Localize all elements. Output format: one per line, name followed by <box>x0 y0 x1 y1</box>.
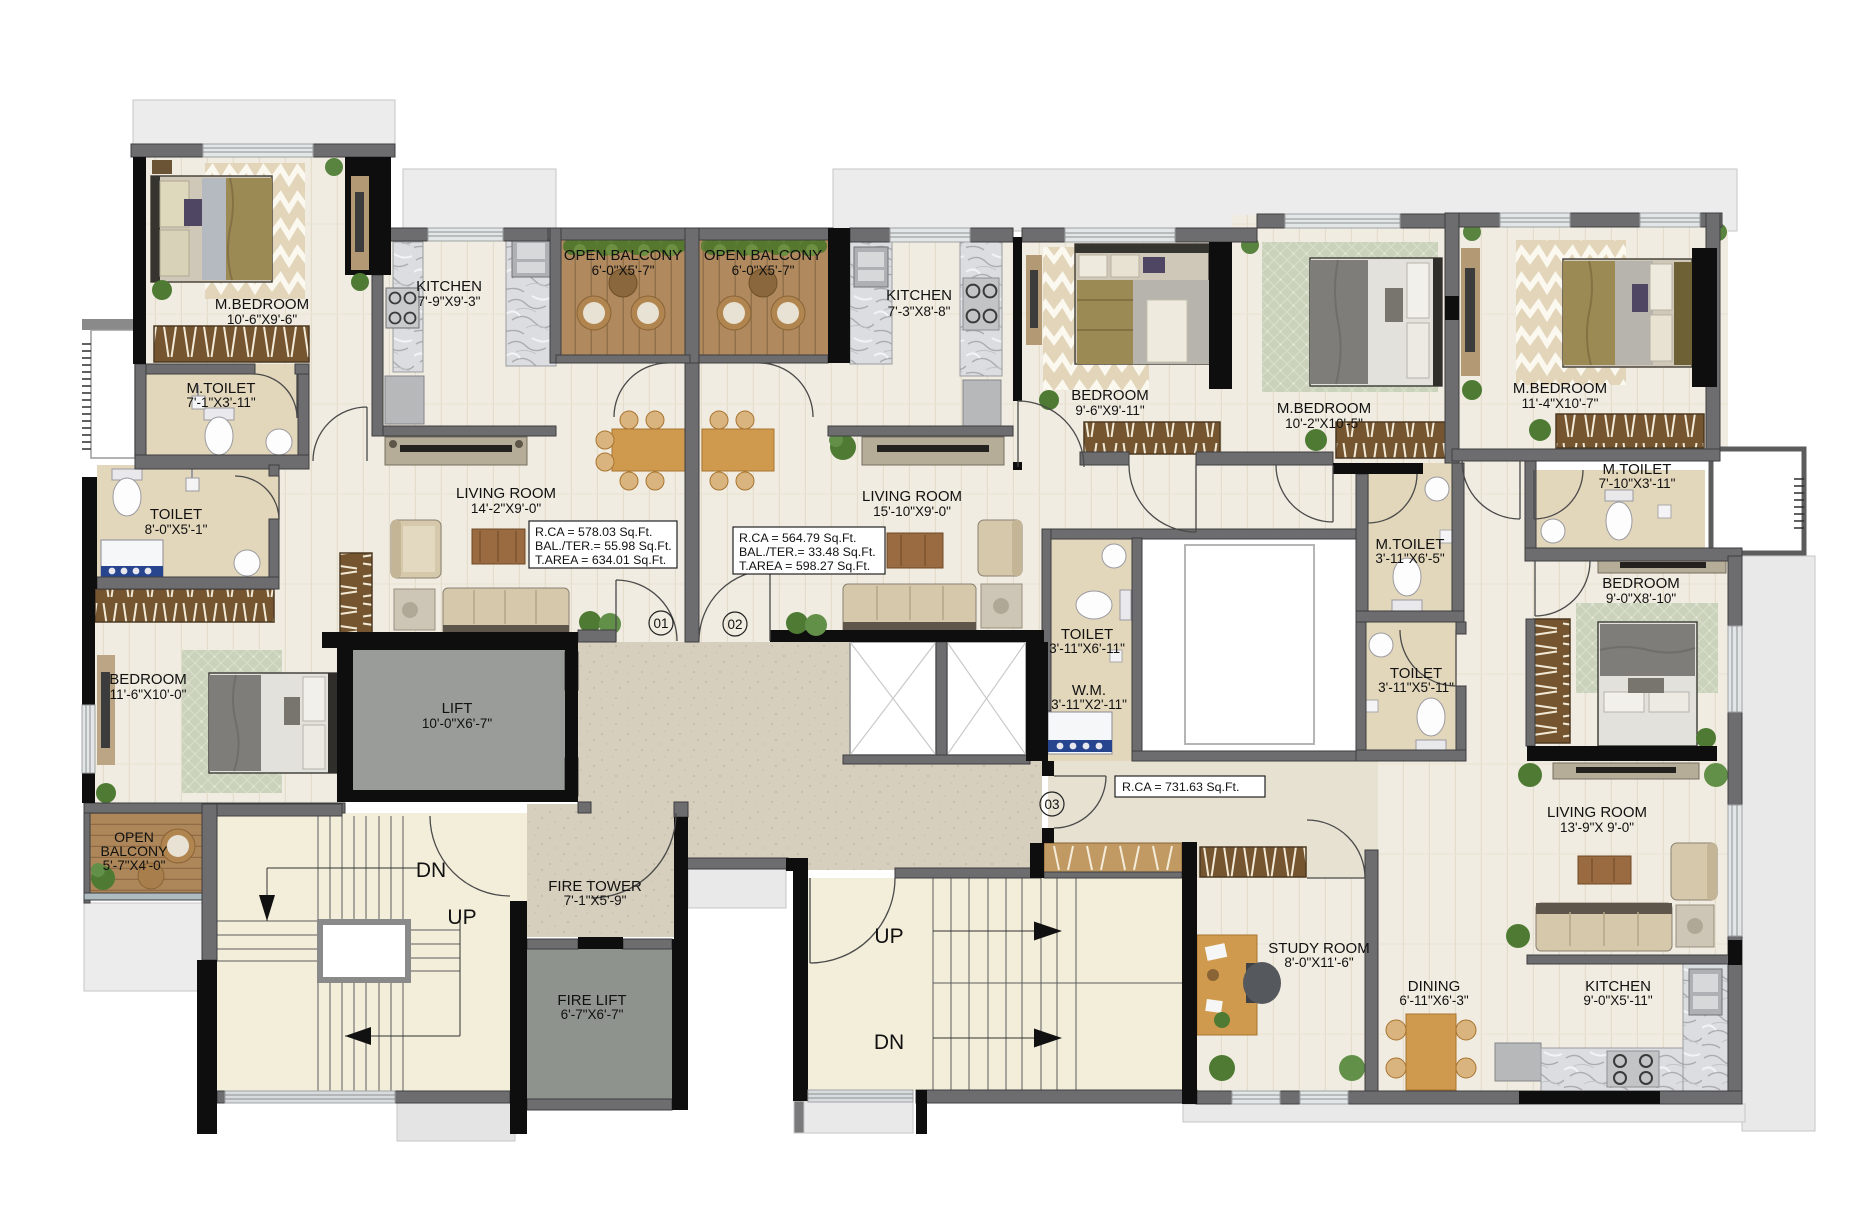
svg-text:R.CA = 731.63 Sq.Ft.: R.CA = 731.63 Sq.Ft. <box>1122 780 1239 794</box>
svg-text:6'-0"X5'-7": 6'-0"X5'-7" <box>732 263 795 278</box>
svg-text:14'-2"X9'-0": 14'-2"X9'-0" <box>471 501 541 516</box>
svg-text:11'-4"X10'-7": 11'-4"X10'-7" <box>1522 396 1599 411</box>
svg-text:9'-0"X8'-10": 9'-0"X8'-10" <box>1606 591 1676 606</box>
svg-text:7'-1"X5'-9": 7'-1"X5'-9" <box>564 893 627 908</box>
svg-text:6'-11"X6'-3": 6'-11"X6'-3" <box>1399 993 1468 1008</box>
svg-text:KITCHEN: KITCHEN <box>416 278 482 295</box>
svg-text:DN: DN <box>874 1031 904 1054</box>
svg-text:10'-6"X9'-6": 10'-6"X9'-6" <box>227 312 297 327</box>
svg-text:11'-6"X10'-0": 11'-6"X10'-0" <box>110 687 187 702</box>
svg-text:9'-0"X5'-11": 9'-0"X5'-11" <box>1583 993 1652 1008</box>
svg-text:7'-10"X3'-11": 7'-10"X3'-11" <box>1599 476 1676 491</box>
svg-text:BEDROOM: BEDROOM <box>1602 575 1680 592</box>
svg-text:9'-6"X9'-11": 9'-6"X9'-11" <box>1075 403 1144 418</box>
svg-text:3'-11"X6'-5": 3'-11"X6'-5" <box>1375 551 1444 566</box>
svg-text:7'-9"X9'-3": 7'-9"X9'-3" <box>418 294 481 309</box>
svg-text:10'-0"X6'-7": 10'-0"X6'-7" <box>422 716 492 731</box>
svg-text:10'-2"X10'-5": 10'-2"X10'-5" <box>1285 416 1363 431</box>
svg-text:LIVING ROOM: LIVING ROOM <box>456 485 556 502</box>
svg-text:OPEN BALCONY: OPEN BALCONY <box>564 247 682 264</box>
svg-text:R.CA = 578.03 Sq.Ft.: R.CA = 578.03 Sq.Ft. <box>535 525 652 539</box>
svg-text:7'-3"X8'-8": 7'-3"X8'-8" <box>888 304 951 319</box>
svg-text:8'-0"X5'-1": 8'-0"X5'-1" <box>145 522 208 537</box>
svg-text:UP: UP <box>874 925 903 948</box>
svg-text:KITCHEN: KITCHEN <box>886 287 952 304</box>
svg-text:BEDROOM: BEDROOM <box>109 671 187 688</box>
svg-text:3'-11"X6'-11": 3'-11"X6'-11" <box>1049 641 1125 656</box>
svg-text:DN: DN <box>416 859 446 882</box>
svg-text:OPEN BALCONY: OPEN BALCONY <box>704 247 822 264</box>
svg-text:3'-11"X5'-11": 3'-11"X5'-11" <box>1378 680 1454 695</box>
svg-text:BEDROOM: BEDROOM <box>1071 387 1149 404</box>
svg-text:01: 01 <box>653 616 668 631</box>
svg-text:5'-7"X4'-0": 5'-7"X4'-0" <box>103 858 166 873</box>
svg-text:M.BEDROOM: M.BEDROOM <box>1513 380 1607 397</box>
svg-text:03: 03 <box>1044 797 1059 812</box>
svg-text:T.AREA = 634.01 Sq.Ft.: T.AREA = 634.01 Sq.Ft. <box>535 553 666 567</box>
svg-text:UP: UP <box>447 906 476 929</box>
svg-text:BAL./TER.= 33.48 Sq.Ft.: BAL./TER.= 33.48 Sq.Ft. <box>739 545 876 559</box>
svg-text:13'-9"X 9'-0": 13'-9"X 9'-0" <box>1560 820 1634 835</box>
svg-text:6'-0"X5'-7": 6'-0"X5'-7" <box>592 263 655 278</box>
svg-text:15'-10"X9'-0": 15'-10"X9'-0" <box>873 504 951 519</box>
svg-text:LIFT: LIFT <box>442 700 473 717</box>
svg-text:BAL./TER.= 55.98 Sq.Ft.: BAL./TER.= 55.98 Sq.Ft. <box>535 539 672 553</box>
svg-text:BALCONY: BALCONY <box>101 843 169 859</box>
svg-text:T.AREA = 598.27 Sq.Ft.: T.AREA = 598.27 Sq.Ft. <box>739 559 870 573</box>
svg-text:TOILET: TOILET <box>150 506 202 523</box>
svg-text:M.BEDROOM: M.BEDROOM <box>215 296 309 313</box>
svg-text:M.BEDROOM: M.BEDROOM <box>1277 400 1371 417</box>
svg-text:LIVING ROOM: LIVING ROOM <box>1547 804 1647 821</box>
svg-text:R.CA = 564.79 Sq.Ft.: R.CA = 564.79 Sq.Ft. <box>739 531 856 545</box>
svg-text:7'-1"X3'-11": 7'-1"X3'-11" <box>186 395 255 410</box>
svg-text:02: 02 <box>727 617 742 632</box>
svg-text:6'-7"X6'-7": 6'-7"X6'-7" <box>561 1007 624 1022</box>
svg-text:8'-0"X11'-6": 8'-0"X11'-6" <box>1284 955 1353 970</box>
svg-text:LIVING ROOM: LIVING ROOM <box>862 488 962 505</box>
svg-text:3'-11"X2'-11": 3'-11"X2'-11" <box>1051 697 1127 712</box>
